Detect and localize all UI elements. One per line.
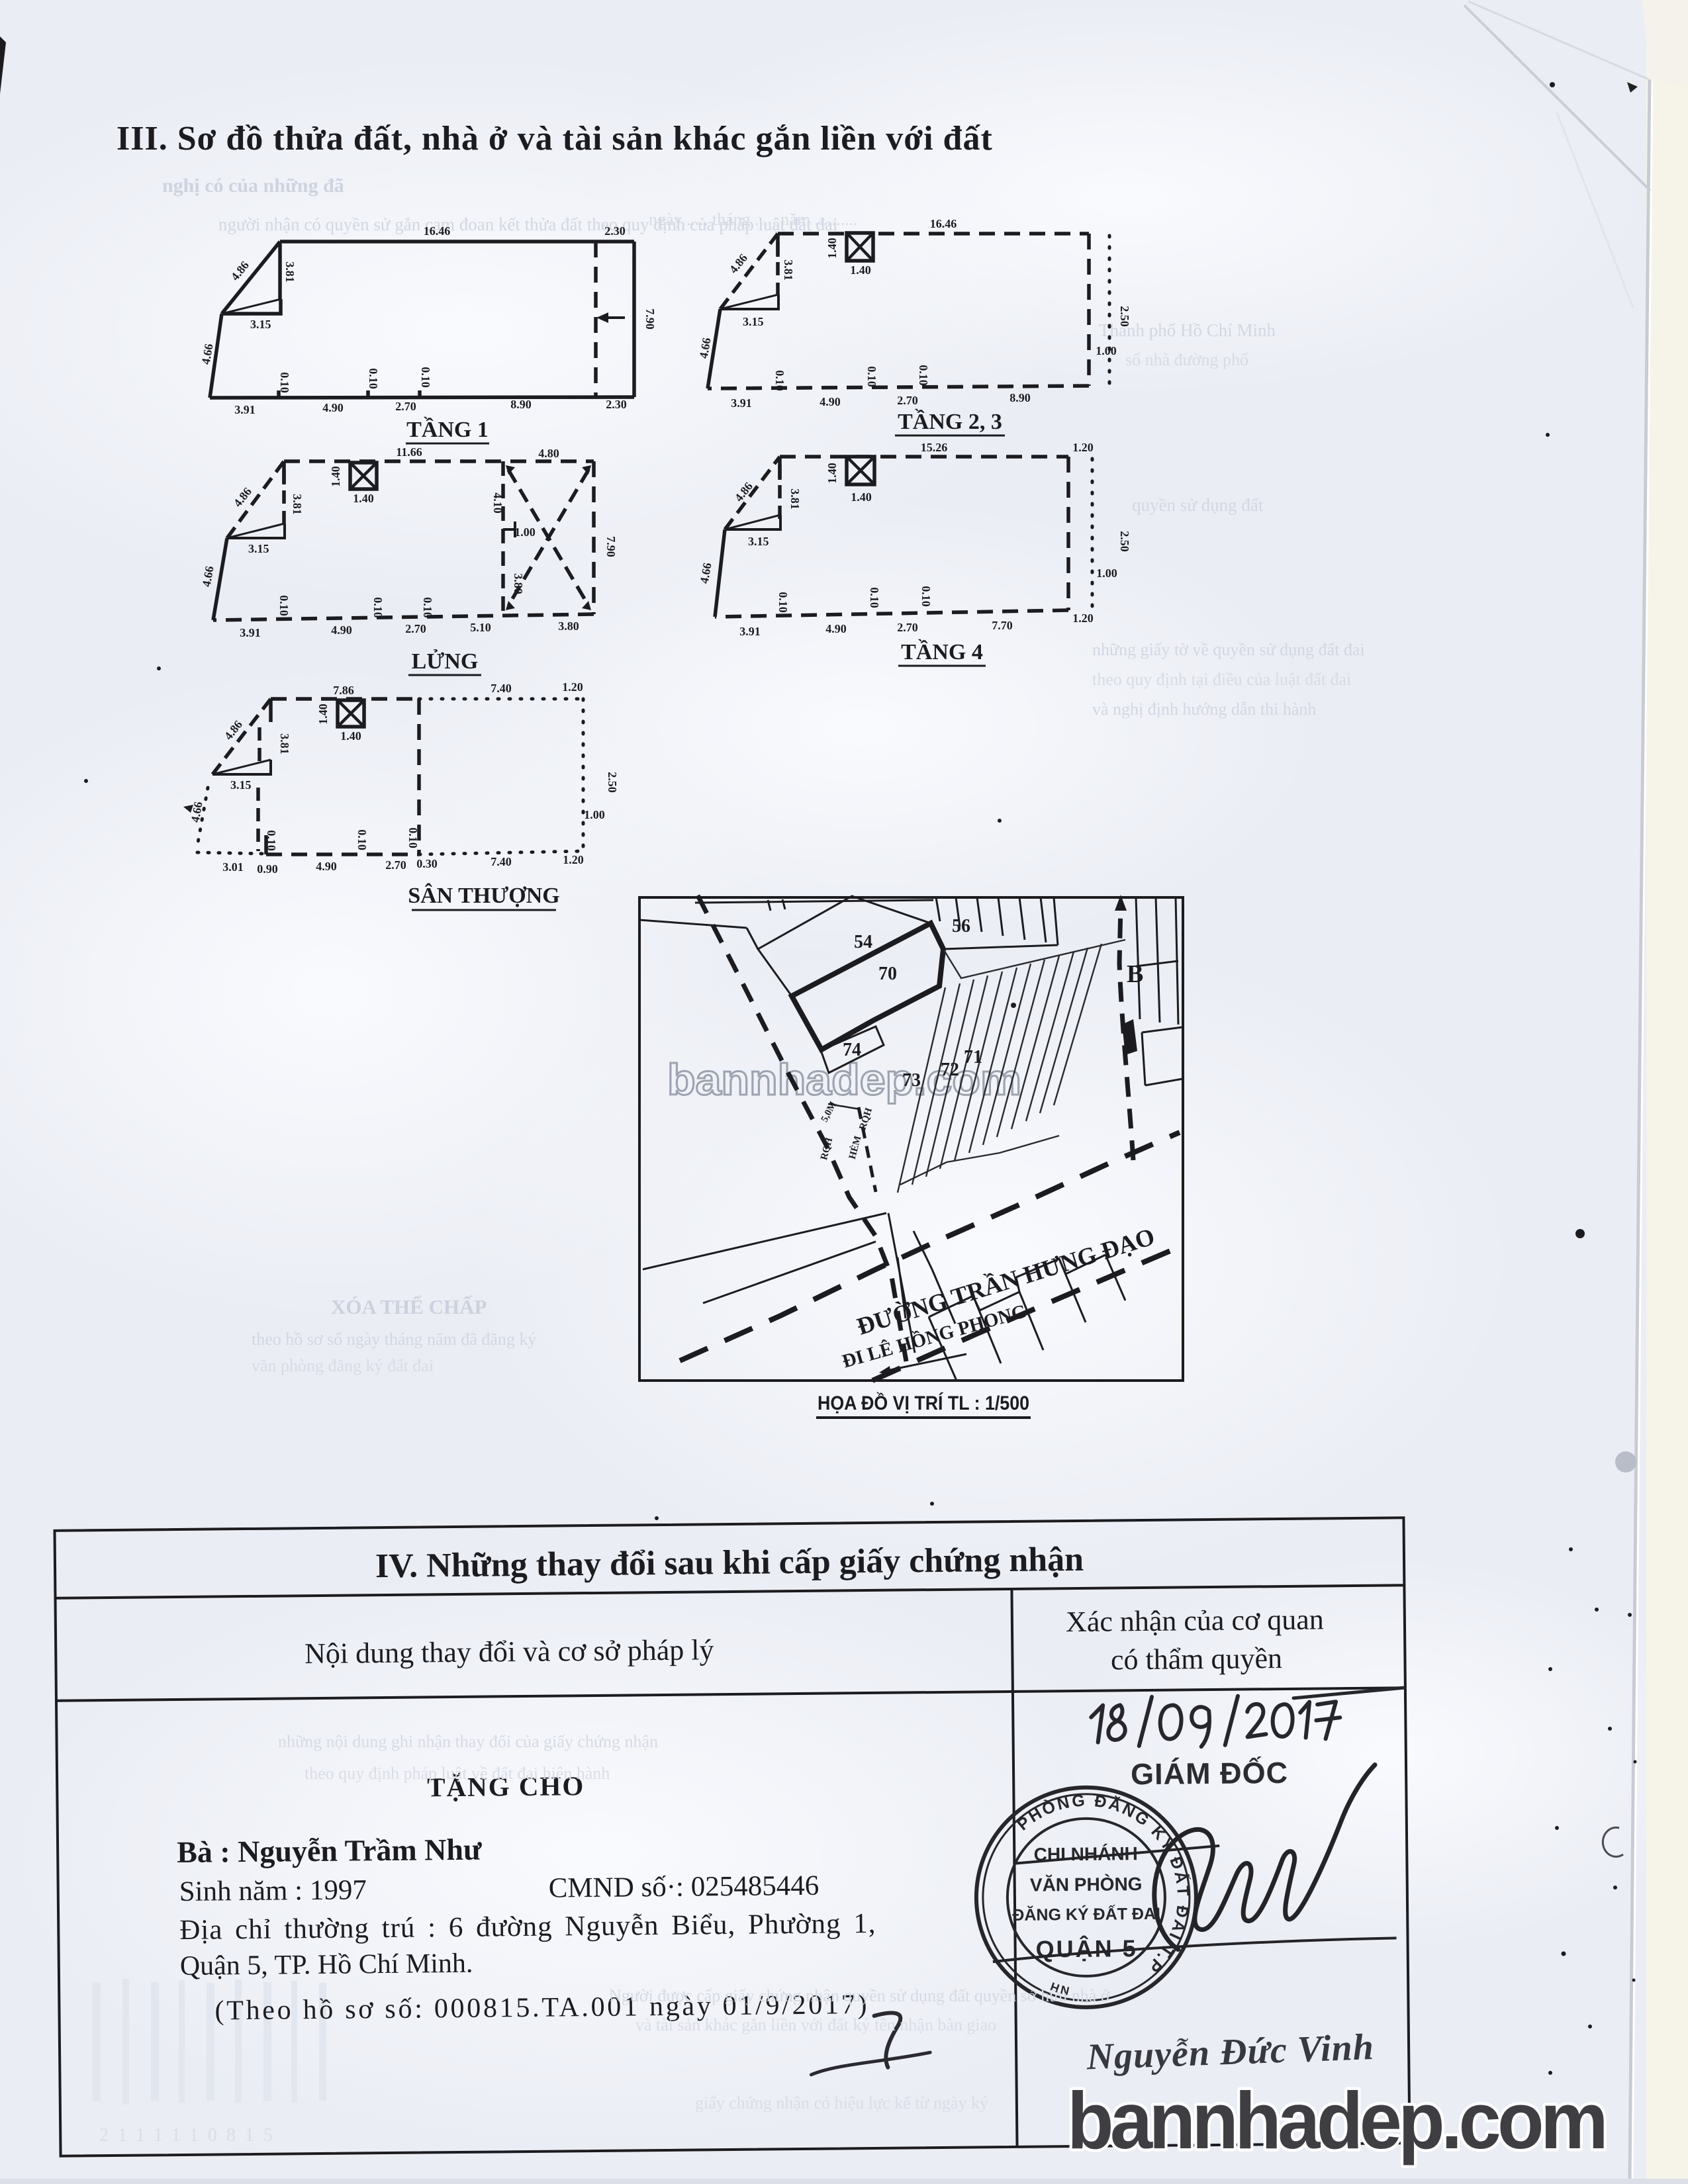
svg-text:2.70: 2.70 xyxy=(405,622,426,635)
svg-text:56: 56 xyxy=(952,916,970,936)
svg-text:2.50: 2.50 xyxy=(1118,306,1131,327)
svg-text:3.15: 3.15 xyxy=(248,542,269,555)
svg-text:0.30: 0.30 xyxy=(416,857,438,870)
svg-text:HỌA ĐỒ VỊ TRÍ TL : 1/500: HỌA ĐỒ VỊ TRÍ TL : 1/500 xyxy=(818,1392,1029,1414)
svg-text:1.40: 1.40 xyxy=(851,490,872,504)
svg-text:0.10: 0.10 xyxy=(406,827,420,848)
svg-text:0.10: 0.10 xyxy=(278,372,291,393)
svg-text:0.10: 0.10 xyxy=(865,366,878,387)
svg-text:4.10: 4.10 xyxy=(491,492,504,514)
svg-text:quyền sử dụng đất: quyền sử dụng đất xyxy=(1132,495,1264,515)
svg-text:1.40: 1.40 xyxy=(316,704,330,725)
svg-text:73: 73 xyxy=(902,1070,921,1091)
svg-text:Người được cấp giấy chứng nhận: Người được cấp giấy chứng nhận quyền sử … xyxy=(609,1986,1111,2005)
svg-text:2.50: 2.50 xyxy=(1118,531,1131,552)
svg-text:0.10: 0.10 xyxy=(419,367,432,388)
svg-text:1.40: 1.40 xyxy=(850,263,871,277)
svg-text:IV. Những thay đổi sau khi cấp: IV. Những thay đổi sau khi cấp giấy chứn… xyxy=(375,1541,1084,1585)
svg-text:III. Sơ đồ thửa đất, nhà ở và: III. Sơ đồ thửa đất, nhà ở và tài sản kh… xyxy=(117,120,993,158)
svg-text:1.40: 1.40 xyxy=(329,466,342,487)
svg-text:7.90: 7.90 xyxy=(604,536,618,557)
svg-text:8.90: 8.90 xyxy=(1009,391,1031,404)
svg-text:CMND số·: 025485446: CMND số·: 025485446 xyxy=(549,1870,820,1904)
svg-text:nghị có của những đã: nghị có của những đã xyxy=(162,175,344,197)
svg-text:3.01: 3.01 xyxy=(222,860,244,874)
svg-text:7.90: 7.90 xyxy=(643,308,657,330)
svg-text:1.20: 1.20 xyxy=(562,680,583,694)
svg-text:3.15: 3.15 xyxy=(250,318,271,331)
svg-text:3.91: 3.91 xyxy=(739,625,761,638)
svg-text:7.40: 7.40 xyxy=(491,855,512,868)
svg-text:3.80: 3.80 xyxy=(558,619,579,633)
svg-text:7.70: 7.70 xyxy=(992,619,1013,632)
svg-text:Xác nhận của cơ quan: Xác nhận của cơ quan xyxy=(1066,1603,1324,1638)
svg-text:5.10: 5.10 xyxy=(470,621,491,634)
svg-text:1.40: 1.40 xyxy=(340,729,361,743)
svg-text:1.00: 1.00 xyxy=(514,525,536,539)
svg-text:3.81: 3.81 xyxy=(278,733,291,754)
svg-text:4.90: 4.90 xyxy=(322,401,344,414)
svg-text:74: 74 xyxy=(843,1040,861,1060)
svg-text:0.10: 0.10 xyxy=(265,830,278,851)
svg-text:3.15: 3.15 xyxy=(230,778,252,792)
svg-text:1.40: 1.40 xyxy=(825,463,839,484)
svg-text:TẦNG 4: TẦNG 4 xyxy=(901,639,983,664)
svg-text:7.86: 7.86 xyxy=(333,684,354,697)
svg-text:2.30: 2.30 xyxy=(604,224,626,238)
svg-text:4.90: 4.90 xyxy=(316,860,337,873)
svg-text:0.10: 0.10 xyxy=(773,370,786,391)
svg-text:3.15: 3.15 xyxy=(748,535,769,548)
svg-text:Bà : Nguyễn Trầm Như: Bà : Nguyễn Trầm Như xyxy=(177,1833,483,1869)
svg-text:số nhà đường phố: số nhà đường phố xyxy=(1125,350,1248,369)
svg-text:theo hồ sơ số ngày tháng năm đ: theo hồ sơ số ngày tháng năm đã đăng ký xyxy=(252,1330,536,1349)
svg-text:SÂN THƯỢNG: SÂN THƯỢNG xyxy=(408,883,560,908)
svg-text:Sinh năm : 1997: Sinh năm : 1997 xyxy=(179,1874,367,1907)
svg-text:1.20: 1.20 xyxy=(563,853,584,866)
svg-text:8.90: 8.90 xyxy=(510,398,532,411)
svg-text:TẦNG 1: TẦNG 1 xyxy=(406,416,489,442)
svg-text:theo quy định tại điều của luậ: theo quy định tại điều của luật đất đai xyxy=(1092,670,1351,689)
svg-text:bannhadep.com: bannhadep.com xyxy=(1067,2075,1605,2165)
svg-text:4.90: 4.90 xyxy=(331,623,352,637)
svg-text:0.10: 0.10 xyxy=(371,597,385,618)
svg-text:0.10: 0.10 xyxy=(776,592,790,613)
svg-text:và tài sản khác gắn liền với đ: và tài sản khác gắn liền với đất ký tên … xyxy=(635,2015,996,2034)
svg-text:16.46: 16.46 xyxy=(930,217,957,230)
svg-text:giấy chứng nhận có hiệu lực kể: giấy chứng nhận có hiệu lực kể từ ngày k… xyxy=(695,2093,988,2113)
svg-text:1.00: 1.00 xyxy=(1096,344,1117,357)
svg-text:3.81: 3.81 xyxy=(283,261,297,283)
svg-text:3.80: 3.80 xyxy=(512,573,525,594)
svg-text:2.70: 2.70 xyxy=(385,858,406,872)
svg-text:1.20: 1.20 xyxy=(1072,441,1094,454)
svg-text:1.00: 1.00 xyxy=(584,808,605,821)
svg-text:ĐĂNG KÝ ĐẤT ĐAI: ĐĂNG KÝ ĐẤT ĐAI xyxy=(1012,1903,1160,1925)
svg-text:Quận 5, TP. Hồ Chí Minh.: Quận 5, TP. Hồ Chí Minh. xyxy=(180,1948,473,1981)
svg-text:3.91: 3.91 xyxy=(240,626,261,639)
svg-text:QUẬN 5: QUẬN 5 xyxy=(1035,1934,1137,1962)
svg-text:0.10: 0.10 xyxy=(421,597,434,618)
svg-text:0.10: 0.10 xyxy=(355,829,369,850)
svg-text:7.40: 7.40 xyxy=(491,682,512,695)
svg-text:3.81: 3.81 xyxy=(291,494,304,515)
svg-text:văn phòng đăng ký đất đai: văn phòng đăng ký đất đai xyxy=(252,1356,434,1375)
svg-text:có thẩm quyền: có thẩm quyền xyxy=(1111,1642,1283,1676)
svg-text:4.90: 4.90 xyxy=(820,395,841,408)
svg-text:71: 71 xyxy=(964,1047,982,1068)
svg-text:0.90: 0.90 xyxy=(257,862,278,876)
svg-text:VĂN PHÒNG: VĂN PHÒNG xyxy=(1030,1874,1143,1895)
svg-text:72: 72 xyxy=(941,1060,959,1080)
svg-text:70: 70 xyxy=(878,964,897,984)
svg-text:theo quy định pháp luật về đất: theo quy định pháp luật về đất đai hiện … xyxy=(305,1764,610,1783)
svg-text:4.80: 4.80 xyxy=(538,447,559,460)
svg-text:2.30: 2.30 xyxy=(606,398,627,411)
svg-text:3.81: 3.81 xyxy=(782,259,795,281)
svg-text:TẦNG 2, 3: TẦNG 2, 3 xyxy=(898,408,1002,434)
svg-text:1.00: 1.00 xyxy=(1096,567,1117,580)
svg-text:B: B xyxy=(1127,960,1143,988)
svg-text:3.91: 3.91 xyxy=(234,403,256,416)
svg-text:Nội dung thay đổi và cơ sở phá: Nội dung thay đổi và cơ sở pháp lý xyxy=(305,1633,714,1670)
svg-text:0.10: 0.10 xyxy=(917,365,930,386)
svg-text:những nội dung ghi nhận thay đ: những nội dung ghi nhận thay đổi của giấ… xyxy=(278,1732,658,1751)
svg-text:2.70: 2.70 xyxy=(897,621,918,634)
svg-text:1.40: 1.40 xyxy=(353,492,374,505)
svg-text:1.20: 1.20 xyxy=(1072,612,1094,625)
svg-text:3.15: 3.15 xyxy=(743,315,764,328)
svg-text:những giấy tờ về quyền sử dụng: những giấy tờ về quyền sử dụng đất đai xyxy=(1092,640,1365,659)
svg-text:0.10: 0.10 xyxy=(277,595,291,616)
svg-text:0.10: 0.10 xyxy=(919,586,933,607)
svg-text:2111110815: 2111110815 xyxy=(99,2125,282,2146)
svg-text:1.40: 1.40 xyxy=(825,238,839,259)
svg-text:XÓA THẾ CHẤP: XÓA THẾ CHẤP xyxy=(331,1295,487,1318)
svg-text:3.91: 3.91 xyxy=(731,396,752,410)
svg-text:11.66: 11.66 xyxy=(396,445,422,459)
svg-text:GIÁM ĐỐC: GIÁM ĐỐC xyxy=(1131,1756,1288,1791)
svg-text:2.50: 2.50 xyxy=(606,772,619,793)
svg-text:LỬNG: LỬNG xyxy=(412,649,479,674)
svg-text:ngày ..... tháng ..... năm ...: ngày ..... tháng ..... năm .......... xyxy=(649,210,858,229)
svg-text:4.90: 4.90 xyxy=(825,622,847,635)
svg-text:15.26: 15.26 xyxy=(921,441,948,454)
svg-text:54: 54 xyxy=(854,932,872,952)
svg-text:0.10: 0.10 xyxy=(868,587,881,608)
svg-text:16.46: 16.46 xyxy=(424,224,451,238)
svg-text:2.70: 2.70 xyxy=(897,394,918,407)
svg-text:0.10: 0.10 xyxy=(367,368,380,389)
svg-text:và nghị định hướng dẫn thi hàn: và nghị định hướng dẫn thi hành xyxy=(1092,700,1316,719)
svg-text:3.81: 3.81 xyxy=(788,488,802,510)
svg-text:2.70: 2.70 xyxy=(395,400,416,413)
